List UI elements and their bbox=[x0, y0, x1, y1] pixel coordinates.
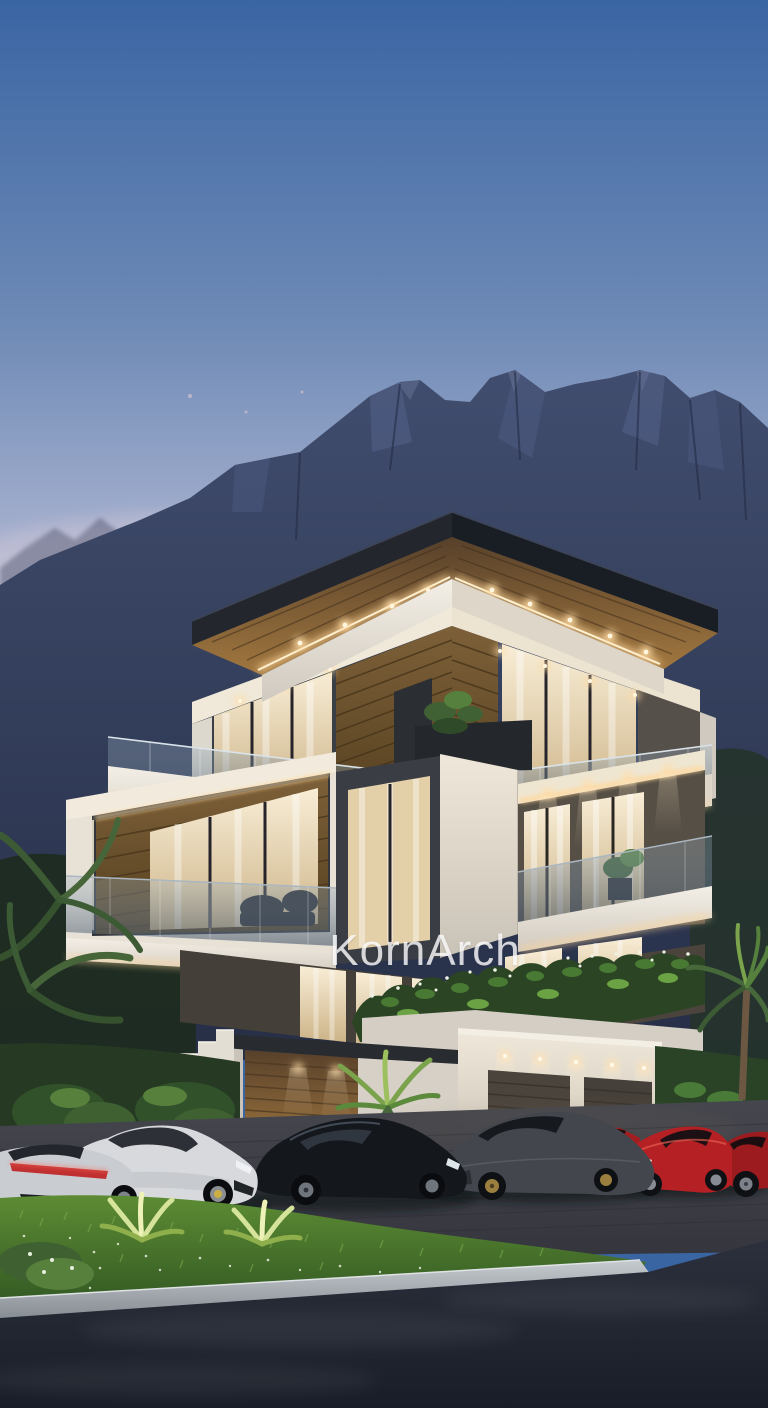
watermark: KornArch bbox=[329, 926, 520, 976]
floor1-window-1 bbox=[300, 966, 346, 1042]
architectural-render: KornArch bbox=[0, 0, 768, 1408]
wing-right bbox=[518, 750, 712, 952]
render-canvas bbox=[0, 0, 768, 1408]
